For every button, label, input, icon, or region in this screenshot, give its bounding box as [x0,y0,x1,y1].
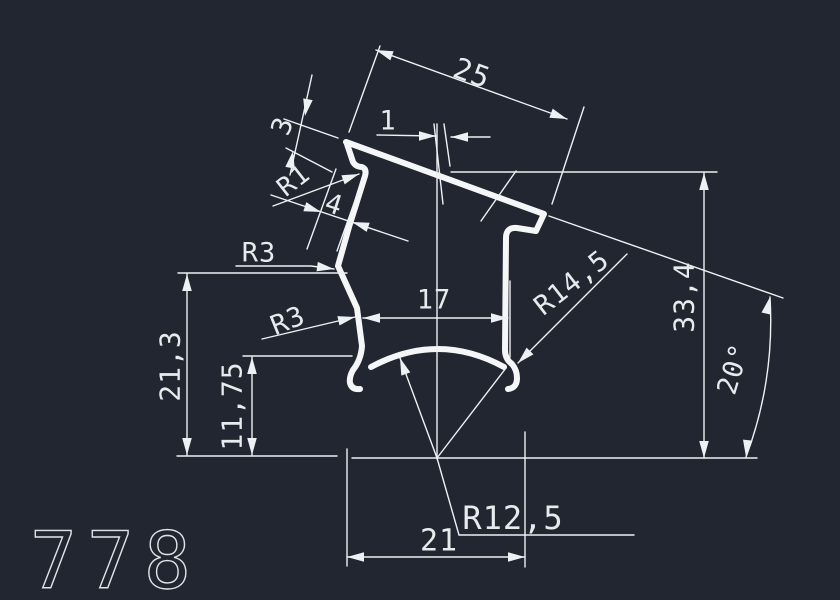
radius-label-r3-lower: R3 [266,300,310,342]
arrowhead [395,356,410,375]
arrowhead [300,98,312,116]
dim-label-4: 4 [321,188,347,223]
radius-label-r12-5: R12,5 [462,499,563,537]
arrowhead [341,169,360,184]
dim-1-tick-right [444,124,450,166]
angle-label-20deg: 20° [712,340,757,399]
arrowhead [363,313,380,323]
arrowhead [699,441,709,458]
dim-label-21: 21 [420,524,458,559]
arrowhead [699,173,709,190]
angle-20-arc [746,297,771,457]
arrowhead [451,132,468,142]
dim-label-33-4: 33,4 [668,261,701,332]
radius-label-r1: R1 [272,159,317,203]
arrowhead [247,438,257,455]
dim-label-25: 25 [449,51,495,96]
arrowhead [247,357,257,374]
arrowhead [337,312,356,325]
cad-canvas[interactable]: 25 1 3 R1 4 R3 R3 17 R14,5 33,4 20° 21,3… [0,0,840,600]
drawing-number: 778 [30,517,201,600]
dim-label-1: 1 [379,106,396,137]
radius-r12-5-radial-right [437,368,506,458]
dim-label-21-3: 21,3 [154,330,187,401]
arrowhead [182,438,192,455]
radius-label-r14-5: R14,5 [528,244,615,322]
cad-model-space: 25 1 3 R1 4 R3 R3 17 R14,5 33,4 20° 21,3… [0,0,840,600]
arrowhead [508,552,525,562]
dim-25-ext-right [552,107,584,204]
arrowhead [761,296,774,315]
arrowhead [182,274,192,291]
dim-label-11-75: 11,75 [216,361,249,450]
dim-label-3: 3 [265,113,300,140]
dimension-labels: 25 1 3 R1 4 R3 R3 17 R14,5 33,4 20° 21,3… [154,51,757,559]
dim-25-ext-left [349,46,380,132]
arrowhead [549,109,568,124]
arrowhead [316,262,334,274]
arrowhead [347,552,364,562]
radius-label-r3-upper: R3 [242,238,277,269]
profile-geometry [338,142,544,389]
dim-label-17: 17 [417,285,452,316]
arrowhead [419,131,436,141]
